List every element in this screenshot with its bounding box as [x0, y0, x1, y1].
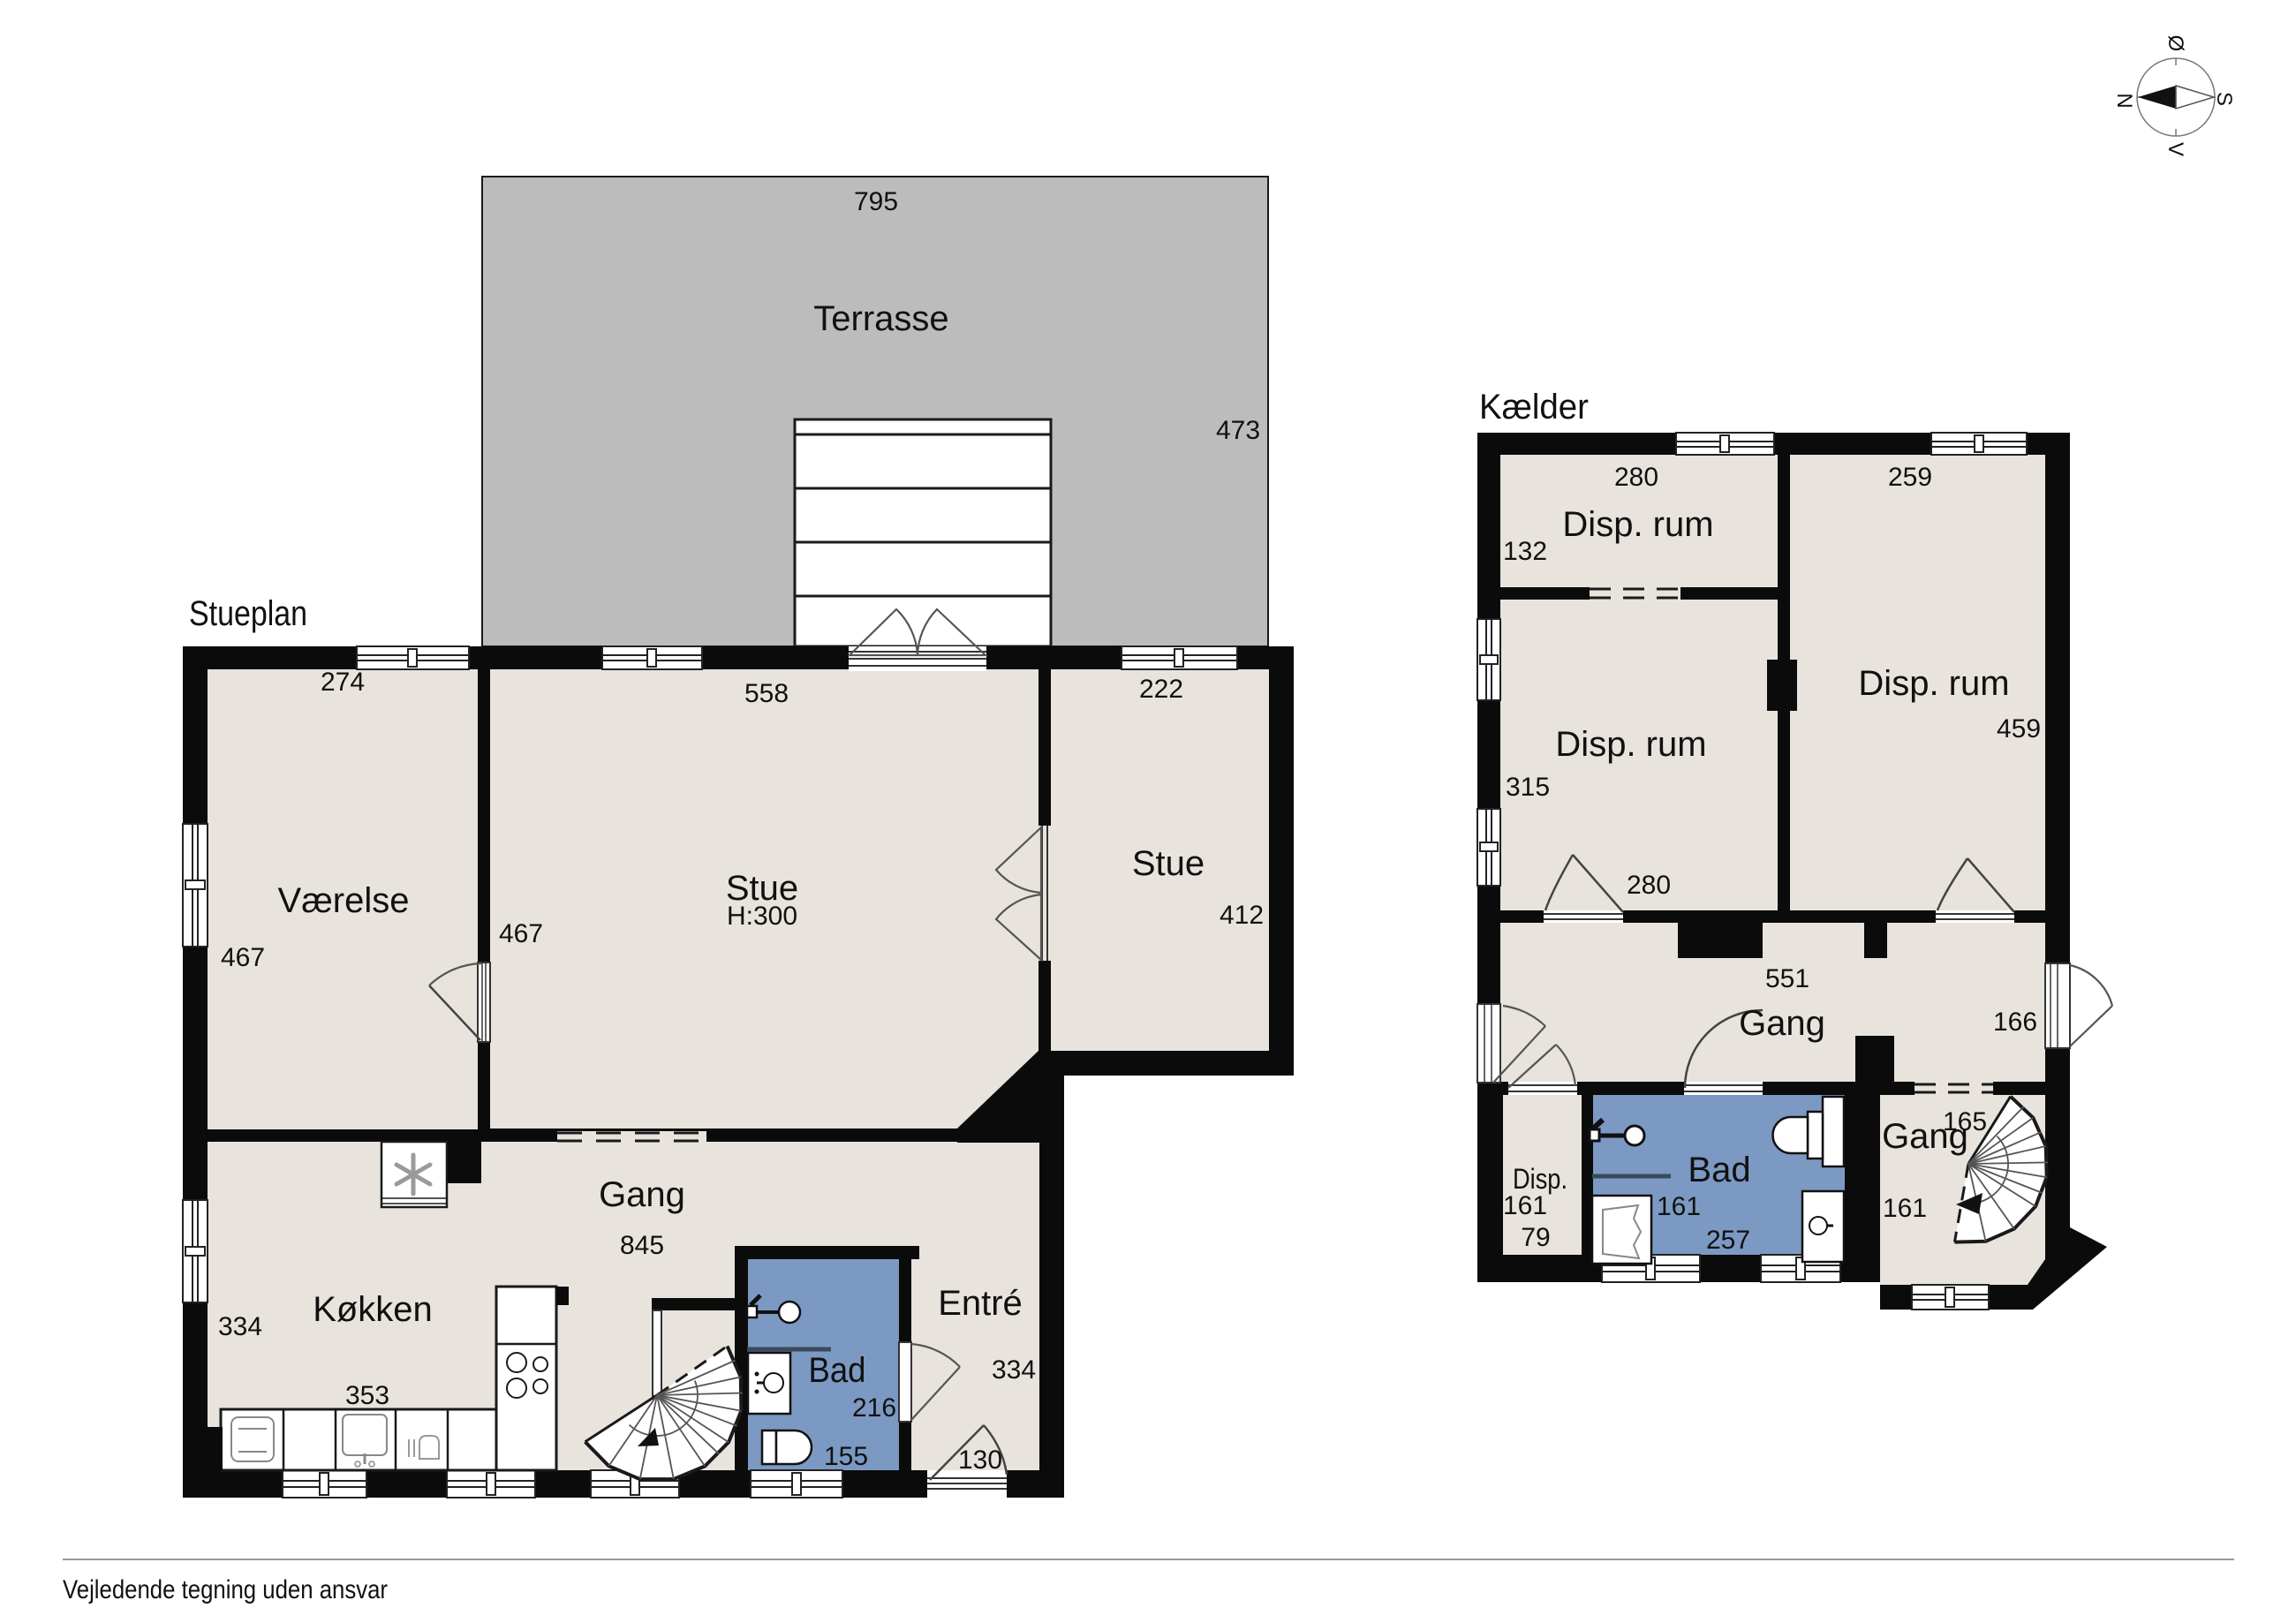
- svg-text:Terrasse: Terrasse: [813, 299, 948, 338]
- svg-text:Gang: Gang: [1882, 1117, 1968, 1156]
- svg-text:473: 473: [1216, 416, 1260, 445]
- svg-text:Gang: Gang: [599, 1175, 685, 1214]
- svg-text:412: 412: [1220, 901, 1264, 930]
- svg-text:H:300: H:300: [727, 902, 797, 931]
- svg-text:V: V: [2164, 142, 2187, 156]
- svg-text:222: 222: [1139, 675, 1183, 704]
- svg-text:161: 161: [1657, 1192, 1701, 1221]
- svg-text:Kælder: Kælder: [1479, 388, 1589, 427]
- svg-text:130: 130: [958, 1446, 1002, 1475]
- svg-text:315: 315: [1506, 773, 1550, 802]
- svg-text:Disp. rum: Disp. rum: [1555, 725, 1706, 764]
- svg-text:Disp. rum: Disp. rum: [1562, 505, 1713, 544]
- svg-text:79: 79: [1521, 1223, 1550, 1252]
- svg-text:161: 161: [1503, 1191, 1547, 1220]
- svg-text:Bad: Bad: [809, 1351, 866, 1390]
- svg-text:155: 155: [824, 1442, 868, 1471]
- svg-text:216: 216: [852, 1393, 896, 1423]
- svg-text:558: 558: [744, 679, 789, 708]
- svg-text:Gang: Gang: [1739, 1004, 1825, 1043]
- svg-text:551: 551: [1765, 964, 1809, 993]
- svg-text:Disp.: Disp.: [1513, 1163, 1567, 1195]
- svg-text:Vejledende tegning uden ansvar: Vejledende tegning uden ansvar: [63, 1575, 388, 1604]
- svg-text:459: 459: [1997, 714, 2041, 744]
- svg-text:Bad: Bad: [1688, 1151, 1750, 1189]
- svg-text:334: 334: [992, 1355, 1036, 1385]
- svg-text:Disp. rum: Disp. rum: [1858, 664, 2009, 703]
- svg-text:Ø: Ø: [2164, 35, 2187, 52]
- svg-text:353: 353: [345, 1381, 389, 1410]
- svg-text:467: 467: [221, 943, 265, 972]
- svg-text:334: 334: [218, 1312, 262, 1341]
- svg-text:161: 161: [1883, 1194, 1927, 1223]
- svg-text:280: 280: [1614, 463, 1658, 492]
- svg-text:467: 467: [499, 919, 543, 948]
- svg-text:Stueplan: Stueplan: [189, 594, 307, 633]
- svg-text:132: 132: [1503, 537, 1547, 566]
- svg-text:274: 274: [321, 668, 365, 697]
- svg-text:257: 257: [1706, 1226, 1750, 1255]
- svg-text:166: 166: [1993, 1008, 2037, 1037]
- svg-text:280: 280: [1627, 871, 1671, 900]
- svg-text:845: 845: [620, 1231, 664, 1260]
- svg-text:N: N: [2112, 93, 2136, 108]
- svg-text:Værelse: Værelse: [278, 881, 410, 920]
- svg-text:Stue: Stue: [1132, 844, 1205, 883]
- svg-text:S: S: [2212, 92, 2236, 106]
- svg-text:Køkken: Køkken: [313, 1290, 433, 1329]
- svg-text:259: 259: [1888, 463, 1932, 492]
- svg-text:795: 795: [854, 187, 898, 216]
- svg-text:Entré: Entré: [938, 1284, 1023, 1323]
